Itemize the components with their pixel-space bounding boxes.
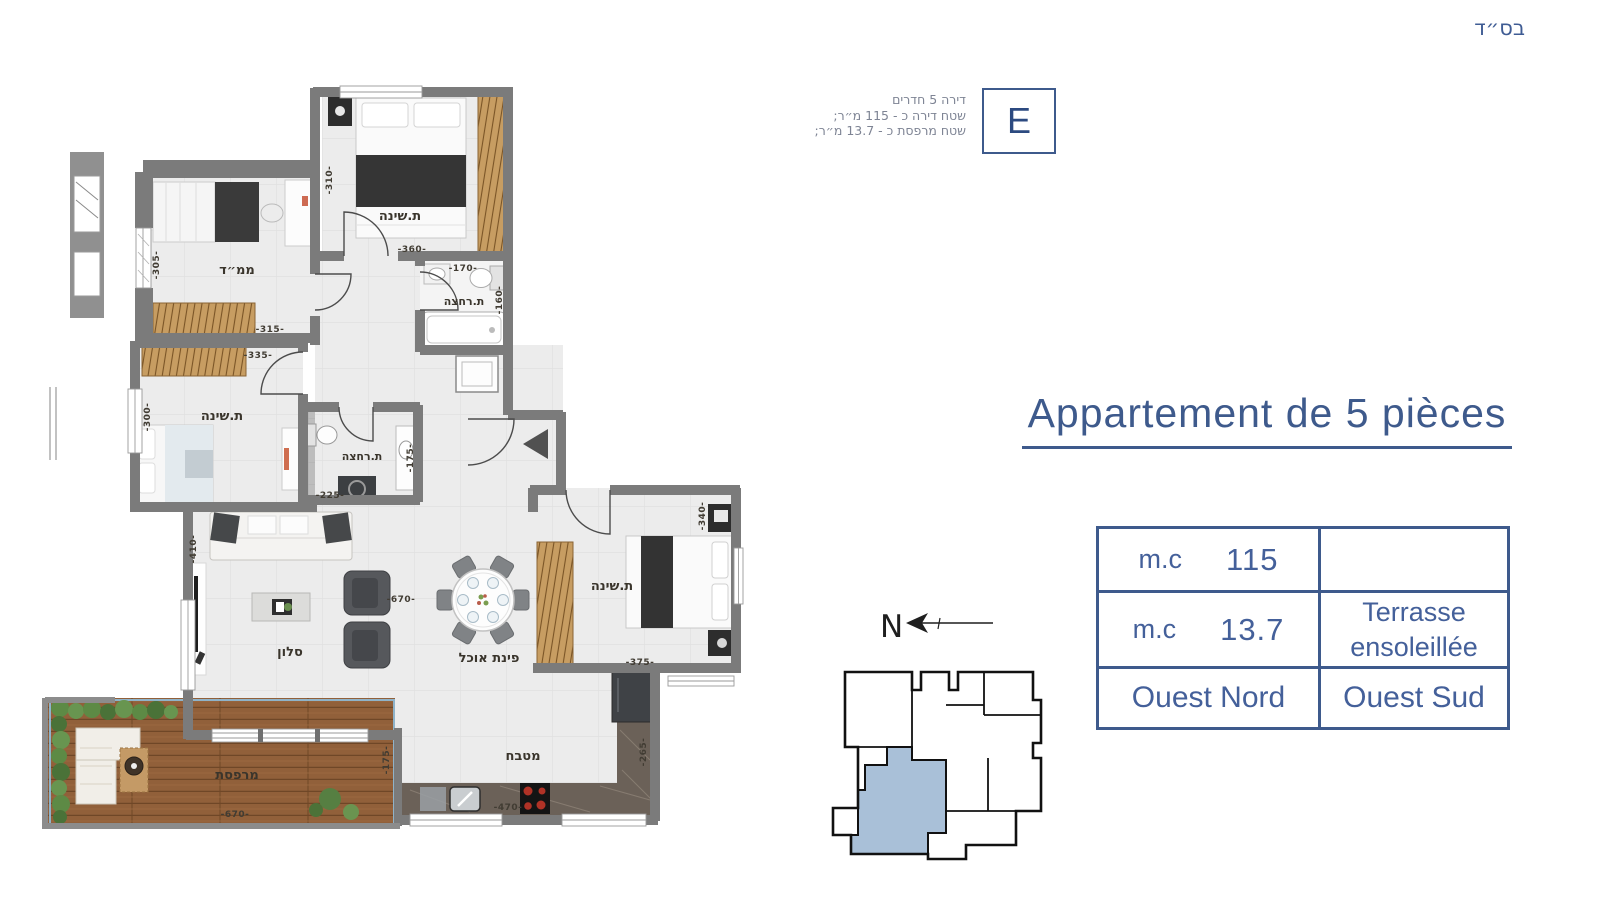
apartment-area-cell: m.c 115 [1099,529,1318,590]
window [136,228,151,288]
dim-bedroom-right-w: -375- [626,658,655,668]
desk [285,180,311,246]
label-bathroom-mid: ת.רחצה [342,450,383,463]
floor-plan: ת.שינה ת.רחצה ממ״ד ת.שינה ת.רחצה סלון פי… [40,80,752,838]
dim-bedroom-mid-h: -300- [143,403,153,432]
dim-bedroom-top-h: -310- [325,166,335,195]
apartment-desc-cell [1318,529,1507,590]
dim-bathroom-mid-w: -225- [316,491,345,501]
terrace-area-value: 13.7 [1220,612,1284,648]
dim-bedroom-right-h: -340- [698,502,708,531]
dim-mamad-h: -305- [152,251,162,280]
label-salon: סלון [277,645,303,660]
kitchen-counter-column [617,722,655,815]
dim-bathroom-mid-h: -175- [406,444,416,473]
label-dining: פינת אוכל [459,651,520,666]
key-plan [818,645,1050,863]
dim-living-h: -410- [189,535,199,564]
dining-chair [513,590,529,610]
label-bedroom-top: ת.שינה [379,209,421,224]
terrace-area-cell: m.c 13.7 [1099,590,1318,666]
label-terrace: מרפסת [215,768,259,783]
window [668,676,734,686]
spec-table: m.c 115 m.c 13.7 Terrasse ensoleillée Ou… [1096,526,1510,730]
closet [153,303,255,337]
dim-mamad-w: -315- [256,325,285,335]
label-kitchen: מטבח [505,749,540,764]
floorplan-sheet: בס״ד דירה 5 חדרים שטח דירה כ - 115 מ״ר; … [0,0,1600,900]
label-bedroom-mid: ת.שינה [201,409,243,424]
dim-bathroom-top-h: -160- [495,286,505,315]
exterior-wall-fragment [50,152,104,460]
north-arrow: N [852,600,1002,646]
entry-closet [456,356,498,392]
label-bathroom-top: ת.רחצה [444,295,485,308]
window [734,548,743,604]
bsd-text: בס״ד [1440,16,1525,40]
window [410,814,502,826]
window [212,729,368,742]
dim-bedroom-top-w: -360- [398,245,427,255]
orientation-right-cell: Ouest Sud [1318,666,1507,727]
dining-chair [437,590,453,610]
dim-living-w: -670- [387,595,416,605]
dim-terrace-w: -670- [221,810,250,820]
terrace-desc-line2: ensoleillée [1350,630,1478,665]
closet [142,346,246,376]
orientation-left-cell: Ouest Nord [1099,666,1318,727]
apartment-area-value: 115 [1226,542,1278,578]
dishwasher [420,787,446,811]
dim-terrace-h: -175- [382,746,392,775]
terrace-area-unit: m.c [1133,614,1177,645]
dim-bathroom-top-w: -170- [449,264,478,274]
window [128,389,142,453]
page-title: Appartement de 5 pièces [1014,390,1520,449]
stove [520,783,550,814]
terrace-desc-cell: Terrasse ensoleillée [1318,590,1507,666]
dim-kitchen-w: -470- [494,803,523,813]
window [562,814,646,826]
dim-bedroom-mid-w: -335- [244,351,273,361]
closet [537,542,573,670]
unit-letter-badge: E [982,88,1056,154]
unit-letter: E [1007,100,1031,142]
apartment-area-unit: m.c [1139,544,1183,575]
label-bedroom-right: ת.שינה [591,579,633,594]
bed [153,182,215,242]
window [340,86,422,98]
dim-kitchen-h: -265- [639,738,649,767]
north-label: N [880,609,903,645]
window [181,600,195,690]
label-mamad: ממ״ד [219,263,255,278]
terrace-desc-line1: Terrasse [1362,595,1466,630]
desk-chair [261,204,283,222]
